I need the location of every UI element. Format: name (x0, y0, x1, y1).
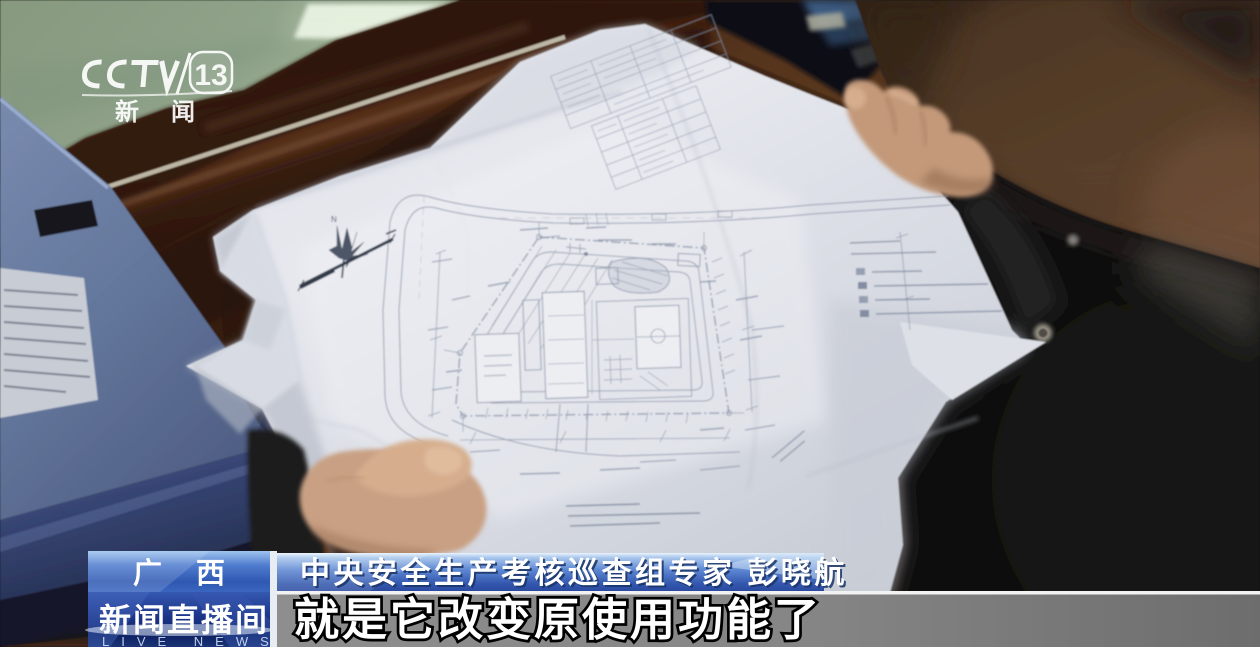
svg-text:就是它改变原使用功能了: 就是它改变原使用功能了 (294, 594, 822, 645)
svg-text:N: N (331, 215, 337, 224)
svg-text:闻: 闻 (171, 99, 195, 126)
svg-text:中央安全生产考核巡查组专家 彭晓航: 中央安全生产考核巡查组专家 彭晓航 (300, 556, 848, 590)
svg-text:新: 新 (115, 98, 139, 126)
svg-text:广 西: 广 西 (133, 557, 238, 590)
svg-text:新闻直播间: 新闻直播间 (99, 602, 269, 638)
svg-text:13: 13 (194, 59, 227, 92)
svg-text:LIVE NEWS: LIVE NEWS (102, 634, 281, 647)
